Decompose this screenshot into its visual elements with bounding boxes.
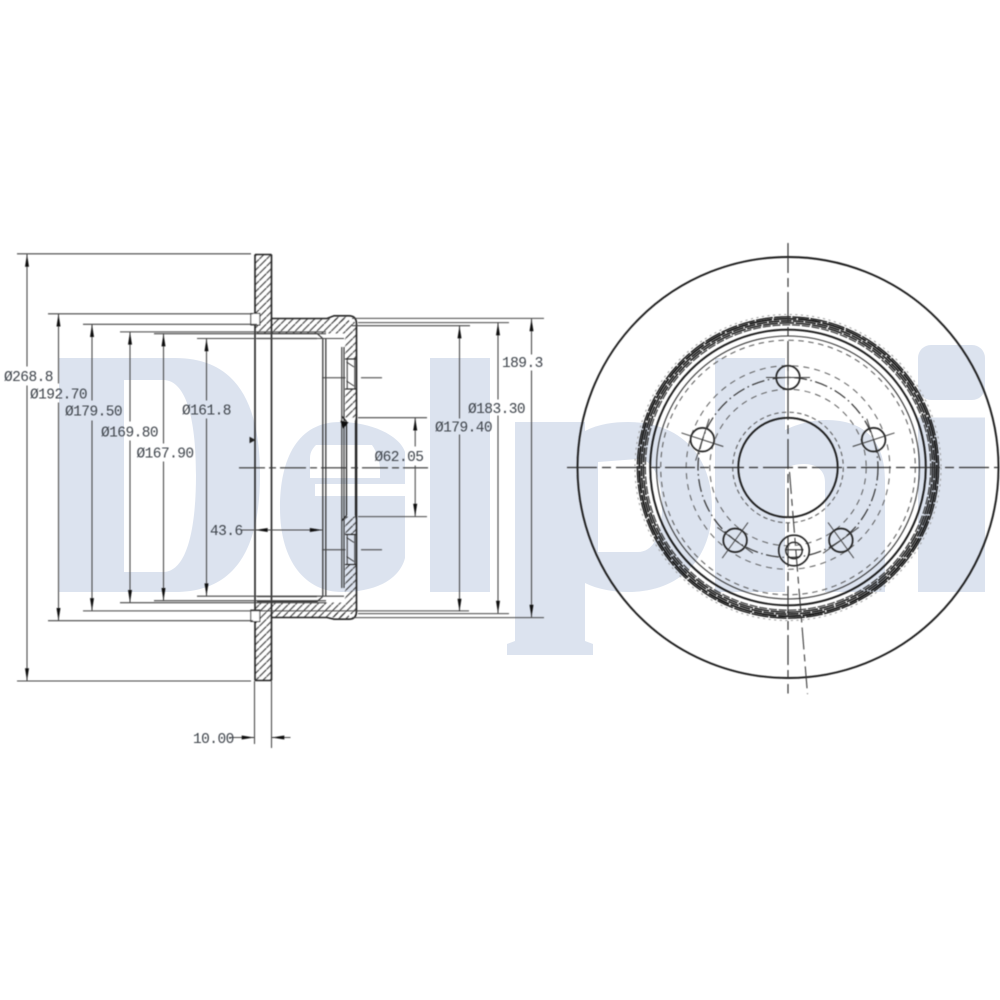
svg-text:Ø179.40: Ø179.40: [435, 421, 492, 437]
svg-text:Ø183.30: Ø183.30: [468, 402, 525, 418]
svg-text:Ø192.70: Ø192.70: [30, 388, 87, 404]
svg-text:189.3: 189.3: [502, 356, 543, 372]
svg-text:Ø268.8: Ø268.8: [4, 370, 53, 386]
svg-text:43.6: 43.6: [210, 524, 243, 540]
svg-text:Ø179.50: Ø179.50: [65, 405, 122, 421]
svg-text:Ø62.05: Ø62.05: [375, 450, 424, 466]
svg-text:10.00: 10.00: [193, 732, 234, 748]
svg-text:Ø161.8: Ø161.8: [182, 404, 231, 420]
svg-text:Ø169.80: Ø169.80: [101, 426, 158, 442]
svg-text:Ø167.90: Ø167.90: [137, 447, 194, 463]
